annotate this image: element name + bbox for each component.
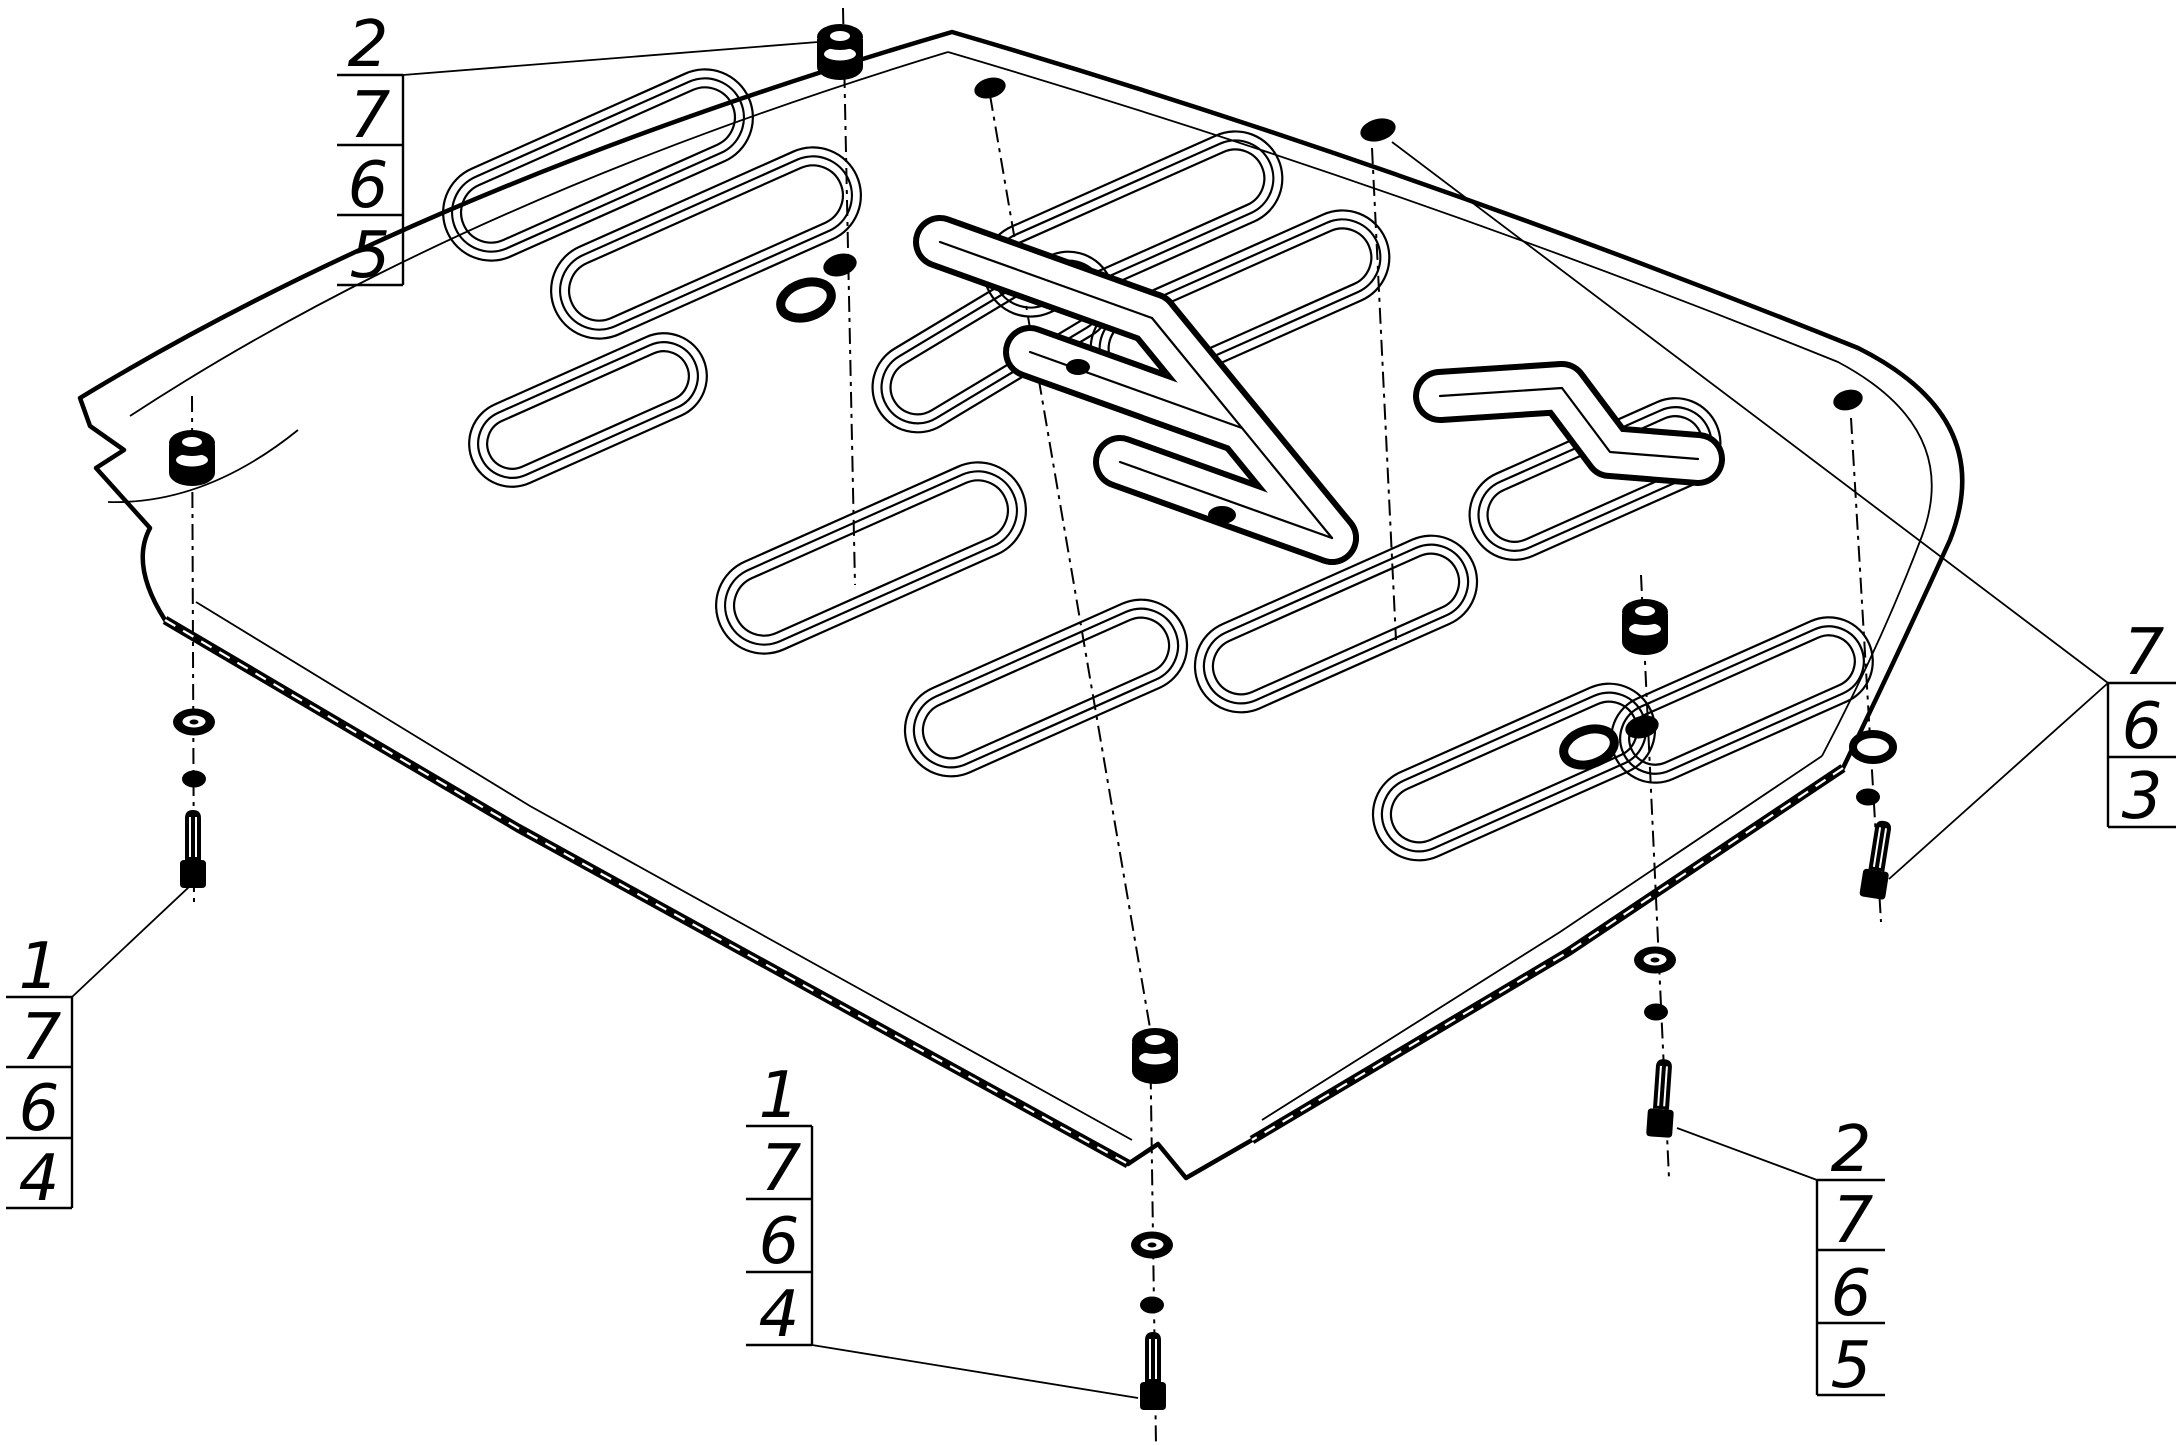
callout-number: 7: [1833, 1184, 1874, 1258]
hex-hole: [1831, 386, 1865, 413]
flat-washer: [1634, 947, 1676, 974]
callout-bottom-right: 2 7 6 5: [1817, 1113, 1885, 1403]
flat-washer: [1131, 1232, 1173, 1259]
callout-number: 1: [19, 930, 60, 1004]
spring-washer: [1644, 1004, 1668, 1021]
callout-right: 7 6 3: [2108, 616, 2176, 834]
leader-line: [1677, 1128, 1817, 1180]
flange-band: [1252, 768, 1843, 1140]
center-line: [843, 8, 855, 585]
round-hole: [1559, 723, 1619, 771]
spring-washer: [1140, 1297, 1164, 1314]
spacer-bushing: [1622, 599, 1668, 655]
technical-drawing-page: 2 7 6 5 1 7 6 4 1 7 6 4 2 7 6 5 7 6 3: [0, 0, 2181, 1445]
spring-washer: [182, 771, 206, 788]
hex-hole: [821, 250, 860, 280]
bolt: [1646, 1058, 1677, 1138]
leader-line: [72, 886, 190, 997]
callout-top-left: 2 7 6 5: [337, 8, 403, 293]
callout-number: 6: [1831, 1257, 1872, 1331]
callout-number: 1: [759, 1059, 800, 1133]
vent-slot: [890, 585, 1201, 791]
skid-plate-assembly-diagram: 2 7 6 5 1 7 6 4 1 7 6 4 2 7 6 5 7 6 3: [0, 0, 2181, 1445]
callout-number: 7: [350, 79, 391, 153]
callout-number: 2: [1831, 1113, 1872, 1187]
vent-slot: [455, 319, 720, 500]
vent-slot: [536, 132, 877, 354]
mounting-holes: [776, 74, 1865, 771]
spacer-bushing: [169, 430, 215, 486]
callout-number: 7: [761, 1132, 802, 1206]
callout-number: 3: [2122, 760, 2163, 834]
leader-line: [403, 42, 818, 75]
callout-number: 4: [759, 1278, 800, 1352]
bolt: [1140, 1332, 1166, 1410]
callout-number: 2: [348, 8, 389, 82]
leader-line: [812, 1345, 1138, 1398]
callout-number: 6: [759, 1205, 800, 1279]
flange-band: [165, 620, 1128, 1164]
round-hole: [776, 276, 836, 324]
leader-line: [1889, 683, 2108, 879]
callout-number: 6: [2122, 690, 2163, 764]
small-hole: [1066, 359, 1090, 375]
small-hole: [1208, 506, 1236, 524]
hex-hole: [972, 74, 1008, 102]
vent-slot: [428, 54, 769, 276]
callout-number: 7: [2124, 616, 2165, 690]
callout-number: 5: [1831, 1329, 1872, 1403]
callout-left: 1 7 6 4: [6, 930, 72, 1216]
callout-bottom-center: 1 7 6 4: [746, 1059, 812, 1352]
flat-washer: [1853, 734, 1893, 760]
bolt: [1859, 819, 1897, 900]
vent-slot: [701, 447, 1042, 669]
hex-hole: [1358, 115, 1398, 146]
vent-slot: [1358, 669, 1669, 875]
callout-number: 6: [19, 1072, 60, 1146]
bolt: [180, 810, 206, 888]
callout-number: 7: [21, 1001, 62, 1075]
callout-number: 6: [348, 149, 389, 223]
flat-washer: [173, 709, 215, 736]
callout-number: 5: [350, 219, 391, 293]
spring-washer: [1856, 789, 1880, 806]
spacer-bushing: [1132, 1028, 1178, 1084]
spacer-bushing: [817, 24, 863, 80]
callout-number: 4: [19, 1142, 60, 1216]
